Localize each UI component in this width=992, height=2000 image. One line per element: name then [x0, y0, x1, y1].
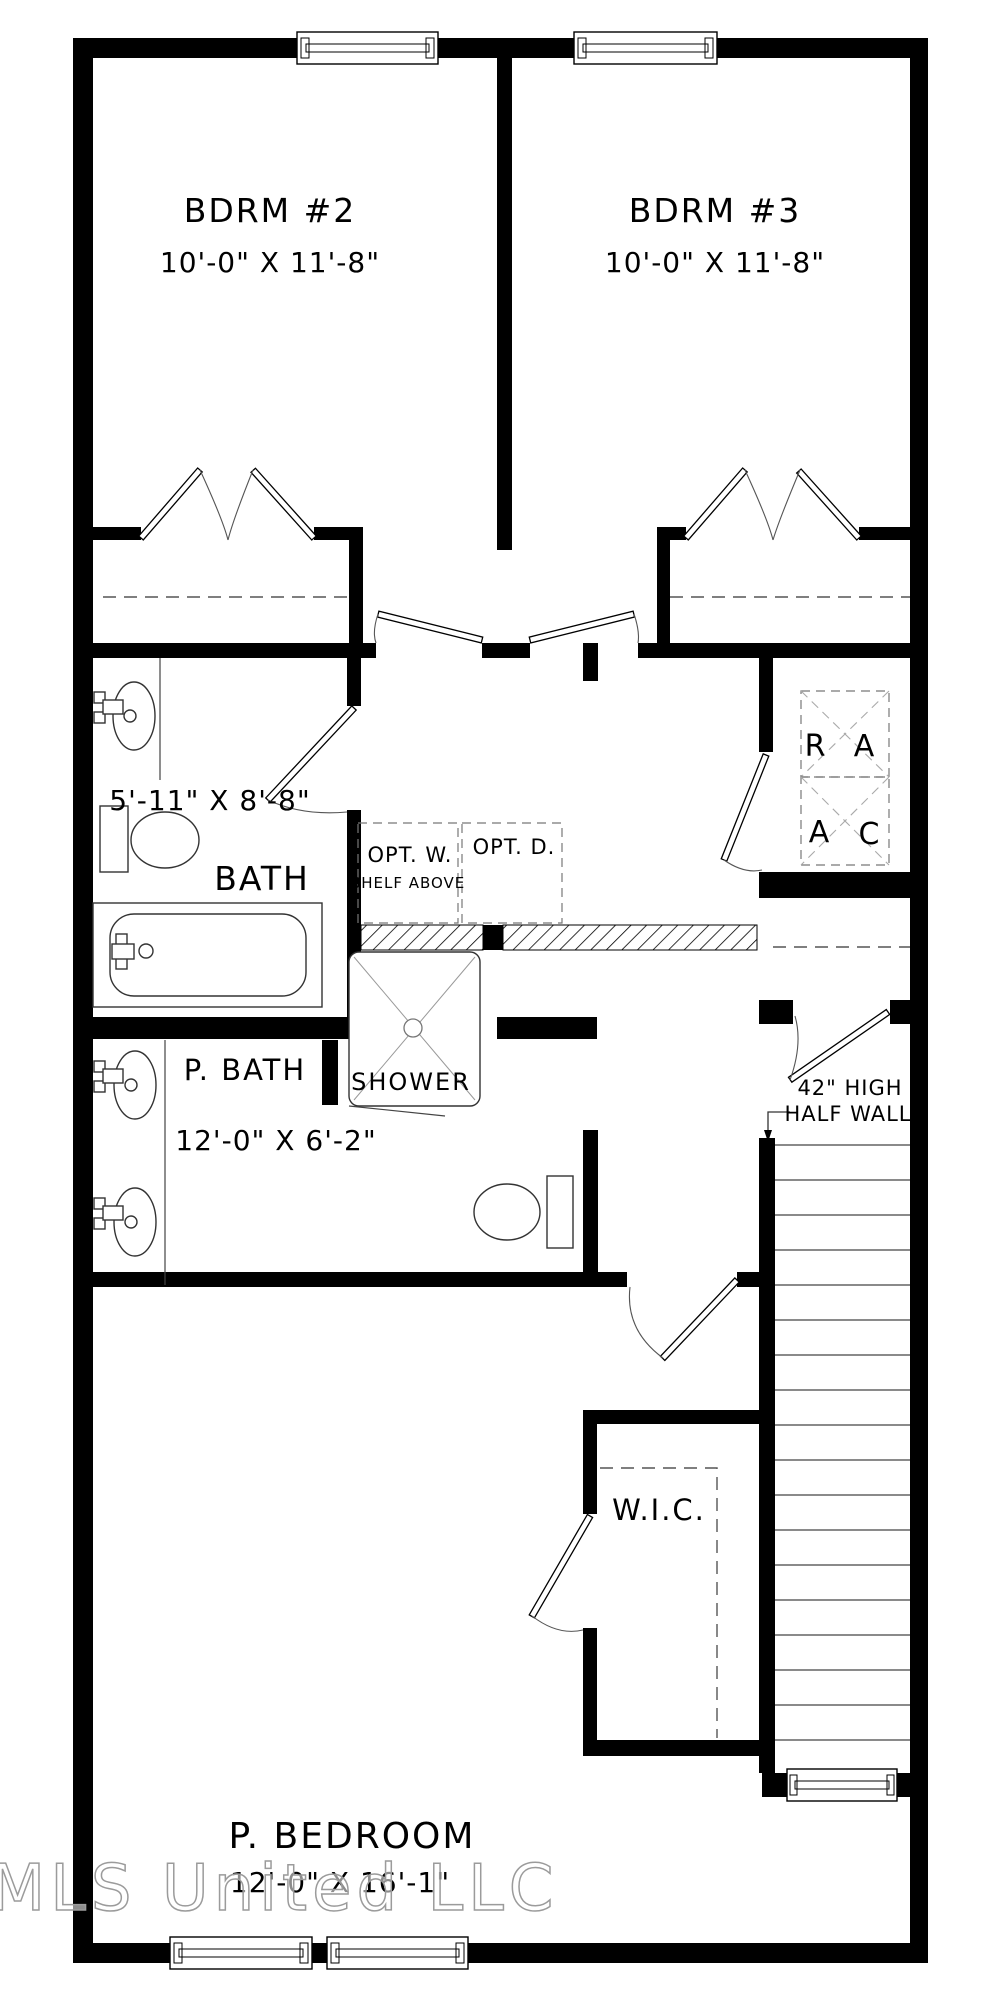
pbath-vanity	[94, 1040, 165, 1285]
floor-plan-drawing: BDRM #2 10'-0" X 11'-8" BDRM #3 10'-0" X…	[0, 0, 992, 2000]
wall-closet2-side	[349, 527, 363, 643]
wall-closet3-stub-right	[859, 527, 912, 540]
window-pbedroom-right	[327, 1937, 468, 1969]
fixtures	[93, 658, 573, 1285]
wall-half-wall	[759, 1138, 775, 1773]
half-wall-note-line2: HALF WALL	[785, 1102, 912, 1126]
opt-washer-box	[358, 823, 458, 923]
bedroom2-label: BDRM #2	[184, 191, 357, 230]
wic-label: W.I.C.	[612, 1493, 706, 1527]
wall-bath-right-upper	[347, 658, 361, 706]
shelf-above-label: SHELF ABOVE	[351, 874, 466, 892]
wall-linen-stub-right	[890, 1000, 928, 1024]
return-air-letter-r: R	[805, 729, 826, 764]
pbath-toilet	[474, 1176, 573, 1248]
door-bedroom2	[374, 611, 482, 643]
doors	[139, 468, 890, 1631]
bedroom3-dims: 10'-0" X 11'-8"	[605, 246, 825, 279]
wall-pbedroom-top	[73, 1272, 627, 1287]
bath-dims: 5'-11" X 8'-8"	[109, 784, 310, 817]
wall-pbath-divider-stub	[322, 1040, 338, 1105]
door-linen-closet	[788, 1010, 889, 1083]
pbath-label: P. BATH	[184, 1053, 306, 1087]
ac-letter-c: C	[859, 817, 880, 852]
dashed-lines	[103, 597, 910, 1738]
door-pbedroom	[629, 1278, 739, 1360]
wall-exterior-left	[73, 38, 93, 1963]
wall-wic-left-upper	[583, 1424, 597, 1514]
half-wall-note-line1: 42" HIGH	[797, 1076, 902, 1100]
laundry-floor-hatch	[361, 925, 757, 950]
bath-tub	[93, 903, 322, 1007]
wall-bath-bottom	[73, 1017, 361, 1039]
wall-laundry-stub	[583, 643, 598, 681]
bedroom3-label: BDRM #3	[629, 191, 802, 230]
bath-label: BATH	[214, 859, 310, 898]
pbedroom-label: P. BEDROOM	[229, 1816, 476, 1857]
wall-hall-top-right	[638, 643, 912, 658]
staircase	[775, 1145, 910, 1740]
window-bedroom2	[297, 32, 438, 64]
wall-closet3-side	[657, 527, 670, 643]
wall-linen-stub-left	[759, 1000, 793, 1024]
shower-label: SHOWER	[351, 1068, 471, 1096]
opt-washer-label: OPT. W.	[368, 843, 453, 867]
opt-dryer-label: OPT. D.	[473, 835, 556, 859]
pbath-dims: 12'-0" X 6'-2"	[175, 1124, 376, 1157]
wall-wc-right	[583, 1130, 598, 1287]
wall-pbedroom-top-stub	[737, 1272, 759, 1287]
wall-wic-left-lower	[583, 1628, 597, 1740]
wall-bedroom-divider	[497, 58, 512, 550]
wall-exterior-top	[73, 38, 928, 58]
window-bedroom3	[574, 32, 717, 64]
wall-wic-top	[583, 1410, 759, 1424]
wall-hall-top-left	[73, 643, 376, 658]
wall-mech-left	[759, 658, 773, 752]
watermark-text: MLS United LLC	[0, 1852, 558, 1926]
floor-plan-canvas: BDRM #2 10'-0" X 11'-8" BDRM #3 10'-0" X…	[0, 0, 992, 2000]
bifold-door-closet2	[139, 468, 317, 540]
ac-letter-a: A	[809, 815, 830, 850]
bath-sink	[94, 658, 160, 780]
bedroom2-dims: 10'-0" X 11'-8"	[160, 246, 380, 279]
wall-mech-bottom	[759, 872, 928, 898]
door-wic	[529, 1514, 592, 1631]
door-bedroom3	[529, 611, 638, 643]
window-stairwell	[787, 1769, 897, 1801]
wall-hall-top-center-stub	[482, 643, 530, 658]
wall-wic-bottom	[583, 1740, 759, 1756]
door-mech-closet	[721, 754, 769, 871]
wall-closet2-stub-left	[93, 527, 141, 540]
wall-laundry-hatch-stub	[483, 925, 503, 950]
window-pbedroom-left	[170, 1937, 312, 1969]
wall-wc-top	[497, 1017, 597, 1039]
return-air-letter-a: A	[854, 729, 875, 764]
bifold-door-closet3	[684, 468, 862, 540]
